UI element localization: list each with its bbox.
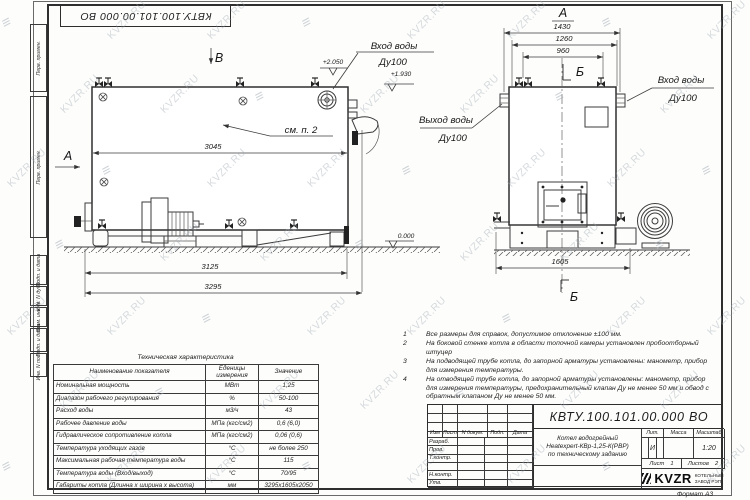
company-logo-text: KVZR <box>654 471 691 486</box>
format-note: Формат А3 <box>655 491 735 498</box>
sheet-row: Лист1 Листов2 <box>641 459 724 469</box>
cell: Габариты котла (Длинна х ширина х высота… <box>54 481 206 494</box>
note-number: 1 <box>403 331 412 339</box>
lit-mass-scale-header: Лит. Масса Масштаб <box>641 429 724 438</box>
table-row: Максимальная рабочая температура воды°С1… <box>54 456 319 469</box>
cell: 70/95 <box>259 468 319 481</box>
door-handle <box>560 197 565 202</box>
outlet-leader <box>472 104 502 128</box>
notes-block: 1Все размеры для справок, допустимое отк… <box>403 331 717 403</box>
inlet-dn-label: Ду100 <box>378 57 407 68</box>
dim-1605: 1605 <box>552 257 570 266</box>
table-row: Температура уходящих газов°Сне более 250 <box>54 443 319 456</box>
sheets-label: Листов <box>688 461 709 467</box>
boiler-body-side <box>92 87 348 230</box>
scale-header: Масштаб <box>694 429 725 438</box>
table-row: Габариты котла (Длинна х ширина х высота… <box>54 481 319 494</box>
company-logo-cell: KVZR КОТЕЛЬНЫЙ ЗАВОД РЭП <box>641 469 724 488</box>
note-number: 4 <box>403 376 412 401</box>
cell: 3295х1605х2050 <box>259 481 319 494</box>
elev-mark <box>384 84 414 91</box>
col-header: Наименование показателя <box>54 365 206 381</box>
drawing-sheet: Перв. примен. Перв. примен. Подп. и дата… <box>0 0 750 500</box>
cell: МПа (кгс/см2) <box>206 418 259 431</box>
section-b-label: Б <box>576 65 584 79</box>
lit-mass-scale-values: И 1:20 <box>641 438 724 459</box>
cell: Расход воды <box>54 406 206 419</box>
see-note-label: см. п. 2 <box>285 125 318 136</box>
doc-name-line: по техническому заданию <box>548 451 627 459</box>
outlet-label: Выход воды <box>419 115 473 126</box>
cell: 1,25 <box>259 381 319 394</box>
cell: Максимальная рабочая температура воды <box>54 456 206 469</box>
outlet-flange <box>500 94 509 107</box>
col-header: Значение <box>259 365 319 381</box>
note-item: 3На подводящей трубе котла, до запорной … <box>403 358 717 375</box>
change-header-row: Изм Лист N докум. Подп. Дата <box>428 429 533 438</box>
drain-valve-icon <box>493 213 501 222</box>
base-frame-front <box>510 225 615 248</box>
cell: 50-100 <box>259 393 319 406</box>
cell: % <box>206 393 259 406</box>
cell: Диапазон рабочего регулирования <box>54 393 206 406</box>
cell: Гидравлическое сопротивление котла <box>54 431 206 444</box>
view-b-label: В <box>215 51 223 65</box>
ground-hatch <box>64 247 440 253</box>
col-list: Лист <box>443 429 458 438</box>
side-fitting <box>74 216 81 227</box>
wall-bracket <box>85 203 92 231</box>
view-a-label: А <box>63 149 72 163</box>
valve-icon <box>597 78 605 87</box>
cell: 0,6 (6,0) <box>259 418 319 431</box>
sheet-label: Лист <box>649 461 664 467</box>
valve-icon <box>524 78 532 87</box>
change-grid <box>428 405 533 432</box>
row-label: Разраб. <box>428 438 458 446</box>
document-name: Котел водогрейный Heatexpert-КВр-1,25-К(… <box>533 429 641 466</box>
dim-1260: 1260 <box>556 34 574 43</box>
empty-cell <box>533 466 641 488</box>
explosion-door <box>348 100 379 154</box>
valve-icon <box>311 78 319 87</box>
table-header-row: Наименование показателя Еденицы измерени… <box>54 365 319 381</box>
dim-1430: 1430 <box>554 22 572 31</box>
outlet-dn-label: Ду100 <box>438 133 467 144</box>
cell: 0,06 (0,6) <box>259 431 319 444</box>
row-label: Н.контр. <box>428 471 458 479</box>
cell: Температура воды (Вход/выход) <box>54 468 206 481</box>
note-number: 3 <box>403 358 412 375</box>
table-row: Гидравлическое сопротивление котлаМПа (к… <box>54 431 319 444</box>
row-label <box>428 463 458 471</box>
dim-3295: 3295 <box>205 282 223 291</box>
inlet-dn-label-front: Ду100 <box>668 93 697 104</box>
col-ndokum: N докум. <box>458 429 488 438</box>
side-view: В см. п. 2 3045 А <box>55 41 440 297</box>
note-number: 2 <box>403 340 412 357</box>
valve-icon <box>104 78 112 87</box>
elev-1930: +1.930 <box>391 71 412 78</box>
cell: 43 <box>259 406 319 419</box>
note-text: На подводящей трубе котла, до запорной а… <box>412 358 717 375</box>
note-item: 2На боковой стенке котла в области топоч… <box>403 340 717 357</box>
front-view: А 1430 1260 960 Б <box>419 6 714 304</box>
cell: МПа (кгс/см2) <box>206 431 259 444</box>
inlet-leader-front <box>627 88 652 101</box>
cell: Рабочее давление воды <box>54 418 206 431</box>
cell: м3/ч <box>206 406 259 419</box>
cell: мм <box>206 481 259 494</box>
col-header: Еденицы измерения <box>206 365 259 381</box>
cell: Температура уходящих газов <box>54 443 206 456</box>
signature-rows: Разраб. Пров. Т.контр. Н.контр. Утв. <box>428 438 533 488</box>
fan-blower <box>616 204 673 249</box>
lit-header: Лит. <box>642 429 664 438</box>
cell: °С <box>206 443 259 456</box>
inlet-label: Вход воды <box>371 41 418 52</box>
tech-table: Наименование показателя Еденицы измерени… <box>53 364 319 494</box>
tech-table-title: Техническая характеристика <box>53 352 318 364</box>
table-row: Расход водым3/ч43 <box>54 406 319 419</box>
doc-name-line: Heatexpert-КВр-1,25-К(РВР) <box>546 443 628 451</box>
elev-2050: +2.050 <box>323 59 344 66</box>
table-row: Номинальная мощностьМВт1,25 <box>54 381 319 394</box>
cell: °С <box>206 456 259 469</box>
note-text: На отводящей трубе котла, до запорной ар… <box>412 376 717 401</box>
note-text: Все размеры для справок, допустимое откл… <box>412 331 717 339</box>
kvzr-logo-icon <box>642 473 651 484</box>
table-row: Диапазон рабочего регулирования%50-100 <box>54 393 319 406</box>
cell: 115 <box>259 456 319 469</box>
table-row: Температура воды (Вход/выход)°С70/95 <box>54 468 319 481</box>
col-podp: Подп. <box>488 429 508 438</box>
dim-3045: 3045 <box>205 142 223 151</box>
dim-960: 960 <box>557 46 570 55</box>
tech-characteristics: Техническая характеристика Наименование … <box>53 352 318 494</box>
document-designation: КВТУ.100.101.00.000 ВО <box>533 405 724 429</box>
cell: не более 250 <box>259 443 319 456</box>
mass-header: Масса <box>664 429 694 438</box>
lit-value: И <box>649 438 656 459</box>
sheets-value: 2 <box>715 461 718 467</box>
company-name: КОТЕЛЬНЫЙ ЗАВОД РЭП <box>695 473 724 484</box>
mass-value <box>664 438 694 459</box>
dim-3125: 3125 <box>202 262 220 271</box>
sheet-value: 1 <box>670 461 673 467</box>
valve-icon <box>515 78 523 87</box>
section-b-label-bottom: Б <box>570 290 578 304</box>
doc-name-line: Котел водогрейный <box>557 435 618 443</box>
cell: Номинальная мощность <box>54 381 206 394</box>
ground-hatch <box>494 250 690 256</box>
row-label: Утв. <box>428 480 458 488</box>
row-label: Т.контр. <box>428 455 458 463</box>
row-label: Пров. <box>428 446 458 454</box>
scale-value: 1:20 <box>694 438 725 459</box>
valve-icon <box>95 78 103 87</box>
valve-icon <box>236 78 244 87</box>
boiler-body-front <box>509 87 616 225</box>
cell: °С <box>206 468 259 481</box>
elev-zero: 0.000 <box>398 233 415 240</box>
view-a-label: А <box>558 6 567 20</box>
note-item: 4На отводящей трубе котла, до запорной а… <box>403 376 717 401</box>
table-row: Рабочее давление водыМПа (кгс/см2)0,6 (6… <box>54 418 319 431</box>
col-data: Дата <box>508 429 533 438</box>
note-item: 1Все размеры для справок, допустимое отк… <box>403 331 717 339</box>
inlet-flange-front <box>616 94 625 107</box>
title-block: Изм Лист N докум. Подп. Дата Разраб. Про… <box>427 404 723 487</box>
inlet-label-front: Вход воды <box>658 75 705 86</box>
note-text: На боковой стенке котла в области топочн… <box>412 340 717 357</box>
inlet-flange <box>318 91 336 109</box>
col-izm: Изм <box>428 429 443 438</box>
cell: МВт <box>206 381 259 394</box>
